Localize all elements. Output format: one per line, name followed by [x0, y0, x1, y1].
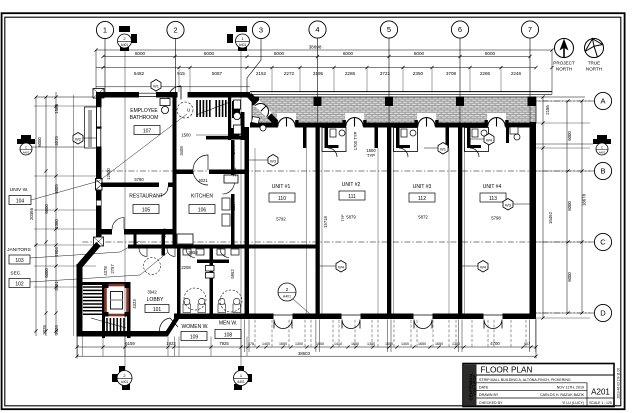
svg-text:1400: 1400 [262, 342, 270, 346]
svg-text:5792: 5792 [276, 217, 286, 222]
svg-text:3408: 3408 [179, 146, 184, 156]
svg-text:38698: 38698 [309, 45, 322, 50]
svg-text:5879: 5879 [346, 215, 356, 220]
svg-text:20366: 20366 [29, 207, 34, 220]
svg-text:108: 108 [224, 333, 233, 339]
svg-text:5872: 5872 [418, 215, 428, 220]
svg-text:110: 110 [278, 196, 286, 202]
svg-text:W3: W3 [270, 158, 277, 163]
svg-text:112: 112 [418, 196, 426, 202]
svg-text:6000: 6000 [567, 201, 572, 211]
svg-text:2807: 2807 [231, 201, 236, 211]
svg-text:4015: 4015 [54, 136, 59, 146]
svg-text:A401: A401 [283, 295, 291, 299]
svg-text:A401: A401 [239, 43, 247, 47]
svg-text:6000: 6000 [274, 51, 285, 56]
svg-text:3: 3 [259, 26, 263, 35]
svg-text:DATE: DATE [479, 385, 489, 389]
svg-text:UNIV W.: UNIV W. [10, 187, 28, 193]
svg-text:A201: A201 [591, 388, 610, 397]
svg-text:1650: 1650 [435, 342, 443, 346]
svg-text:6000: 6000 [567, 272, 572, 282]
svg-text:2380: 2380 [54, 219, 59, 229]
svg-text:1477: 1477 [231, 145, 236, 155]
svg-text:A401: A401 [121, 380, 129, 384]
svg-text:D: D [600, 309, 606, 318]
svg-text:5952: 5952 [230, 269, 235, 279]
svg-text:102: 102 [15, 282, 24, 288]
svg-text:1650: 1650 [385, 342, 393, 346]
svg-text:5798: 5798 [491, 216, 501, 221]
svg-text:KITCHEN: KITCHEN [191, 194, 213, 200]
svg-text:6000: 6000 [343, 51, 354, 56]
svg-text:4: 4 [315, 25, 319, 34]
svg-text:RESTAURANT: RESTAURANT [129, 194, 163, 200]
svg-text:106: 106 [198, 208, 207, 214]
svg-text:1: 1 [601, 146, 603, 150]
svg-text:1500: 1500 [230, 231, 235, 241]
svg-text:2028: 2028 [42, 325, 47, 335]
svg-text:6: 6 [458, 25, 462, 34]
svg-text:2757: 2757 [110, 264, 115, 274]
svg-text:1: 1 [25, 146, 27, 150]
svg-text:NOV 11TH, 2019: NOV 11TH, 2019 [557, 385, 584, 389]
svg-text:W2: W2 [75, 136, 82, 141]
svg-text:6000: 6000 [567, 131, 572, 141]
svg-text:UNIT #2: UNIT #2 [342, 182, 361, 188]
svg-text:105: 105 [142, 208, 151, 214]
svg-text:MEN W.: MEN W. [219, 321, 237, 327]
svg-text:3721: 3721 [380, 71, 391, 76]
svg-text:107: 107 [143, 129, 152, 135]
svg-text:W4: W4 [338, 264, 345, 269]
svg-text:1400: 1400 [401, 342, 409, 346]
svg-text:4700: 4700 [490, 341, 500, 346]
svg-text:C: C [600, 238, 606, 247]
svg-text:NORTH: NORTH [586, 67, 602, 72]
svg-text:3708: 3708 [446, 71, 457, 76]
svg-text:3451: 3451 [54, 281, 59, 291]
svg-text:101: 101 [153, 307, 162, 313]
svg-text:COLLEGE: COLLEGE [473, 375, 478, 395]
svg-text:1922: 1922 [166, 341, 176, 346]
svg-text:W1: W1 [153, 83, 160, 88]
svg-text:A402: A402 [599, 151, 606, 155]
svg-text:6000: 6000 [485, 51, 496, 56]
svg-text:2492: 2492 [232, 167, 237, 177]
svg-text:NORTH: NORTH [556, 67, 572, 72]
svg-text:6000: 6000 [135, 51, 146, 56]
svg-text:2680: 2680 [162, 228, 167, 238]
svg-text:2272: 2272 [284, 71, 295, 76]
svg-text:6000: 6000 [204, 51, 215, 56]
svg-text:DRAWN BY: DRAWN BY [479, 393, 499, 397]
svg-text:6000: 6000 [44, 268, 49, 278]
svg-text:A401: A401 [237, 380, 245, 384]
svg-text:JANITORS: JANITORS [7, 247, 31, 253]
svg-text:STRIP MALL BUILDING A, ALTONA-: STRIP MALL BUILDING A, ALTONA-FINCH, PIC… [479, 378, 571, 382]
svg-text:4323: 4323 [132, 299, 137, 309]
svg-text:1410: 1410 [334, 342, 342, 346]
svg-text:4021: 4021 [198, 178, 208, 183]
svg-text:A: A [600, 97, 605, 106]
svg-text:2350: 2350 [413, 71, 424, 76]
svg-text:18678: 18678 [582, 193, 587, 206]
svg-text:6000: 6000 [414, 51, 425, 56]
svg-text:1300: 1300 [295, 342, 303, 346]
svg-text:109: 109 [190, 335, 199, 341]
svg-text:111: 111 [348, 194, 356, 200]
svg-text:15718: 15718 [323, 216, 328, 228]
svg-text:A402: A402 [23, 151, 30, 155]
svg-text:2019-46-03 2 B 11 00: 2019-46-03 2 B 11 00 [617, 368, 621, 399]
svg-text:EMPLOYEE: EMPLOYEE [130, 108, 158, 114]
svg-text:UNIT #4: UNIT #4 [483, 184, 502, 190]
svg-text:2026: 2026 [54, 325, 59, 335]
svg-text:103: 103 [15, 258, 24, 264]
svg-text:4378: 4378 [103, 266, 108, 276]
svg-text:1700 TYP: 1700 TYP [353, 132, 358, 151]
svg-text:1650: 1650 [418, 342, 426, 346]
svg-text:915: 915 [177, 71, 185, 76]
svg-text:2208: 2208 [181, 265, 191, 270]
svg-text:B: B [600, 167, 605, 176]
svg-text:TYP: TYP [367, 153, 375, 158]
svg-text:3942: 3942 [147, 290, 157, 295]
svg-text:UNIT #1: UNIT #1 [272, 184, 291, 190]
svg-text:16492: 16492 [548, 211, 553, 224]
svg-text:CARLOS H. RAZUK BAZIK: CARLOS H. RAZUK BAZIK [540, 393, 585, 397]
svg-text:3195: 3195 [313, 71, 324, 76]
svg-text:2186: 2186 [545, 105, 550, 115]
svg-text:TYP: TYP [341, 214, 345, 222]
svg-text:2: 2 [173, 26, 177, 35]
svg-text:W3: W3 [505, 202, 512, 207]
svg-text:7925: 7925 [219, 341, 229, 346]
svg-text:507: 507 [524, 342, 530, 346]
svg-text:6000: 6000 [44, 204, 49, 214]
svg-text:1: 1 [103, 26, 107, 35]
svg-text:113: 113 [489, 196, 497, 202]
svg-text:6482: 6482 [134, 71, 145, 76]
svg-text:YI LU (LUCY): YI LU (LUCY) [562, 401, 584, 405]
svg-text:W4: W4 [480, 264, 487, 269]
svg-text:7: 7 [528, 25, 532, 34]
svg-text:12600: 12600 [106, 168, 111, 180]
svg-text:W1: W1 [440, 146, 447, 151]
svg-text:BATHROOM: BATHROOM [130, 115, 159, 121]
svg-text:5087: 5087 [212, 71, 223, 76]
svg-text:W4: W4 [486, 137, 493, 142]
svg-text:PROJECT: PROJECT [553, 61, 575, 66]
svg-text:WOMEN W.: WOMEN W. [182, 324, 209, 330]
svg-text:6159: 6159 [125, 341, 135, 346]
svg-text:SCALE 1 : 125: SCALE 1 : 125 [589, 401, 612, 405]
svg-text:2246: 2246 [511, 71, 522, 76]
svg-text:LOBBY: LOBBY [147, 297, 164, 303]
svg-text:1650: 1650 [279, 342, 287, 346]
svg-text:U: U [187, 108, 190, 113]
svg-text:2152: 2152 [256, 71, 267, 76]
svg-text:TRUE: TRUE [588, 61, 601, 66]
svg-text:38603: 38603 [298, 351, 311, 356]
svg-text:1300: 1300 [367, 342, 375, 346]
svg-text:5780: 5780 [134, 177, 144, 182]
svg-text:CHECKED BY: CHECKED BY [479, 401, 503, 405]
svg-text:104: 104 [16, 199, 25, 205]
svg-text:1904: 1904 [54, 247, 59, 257]
svg-text:FLOOR PLAN: FLOOR PLAN [481, 366, 533, 375]
svg-text:UNIT #3: UNIT #3 [413, 184, 432, 190]
svg-text:1500: 1500 [181, 133, 191, 138]
svg-text:SEC.: SEC. [10, 271, 21, 277]
svg-text:A401: A401 [121, 43, 129, 47]
svg-text:5: 5 [387, 25, 391, 34]
svg-text:2853: 2853 [188, 250, 198, 255]
svg-text:2286: 2286 [345, 71, 356, 76]
svg-text:2286: 2286 [480, 71, 491, 76]
svg-text:6000: 6000 [37, 137, 42, 147]
